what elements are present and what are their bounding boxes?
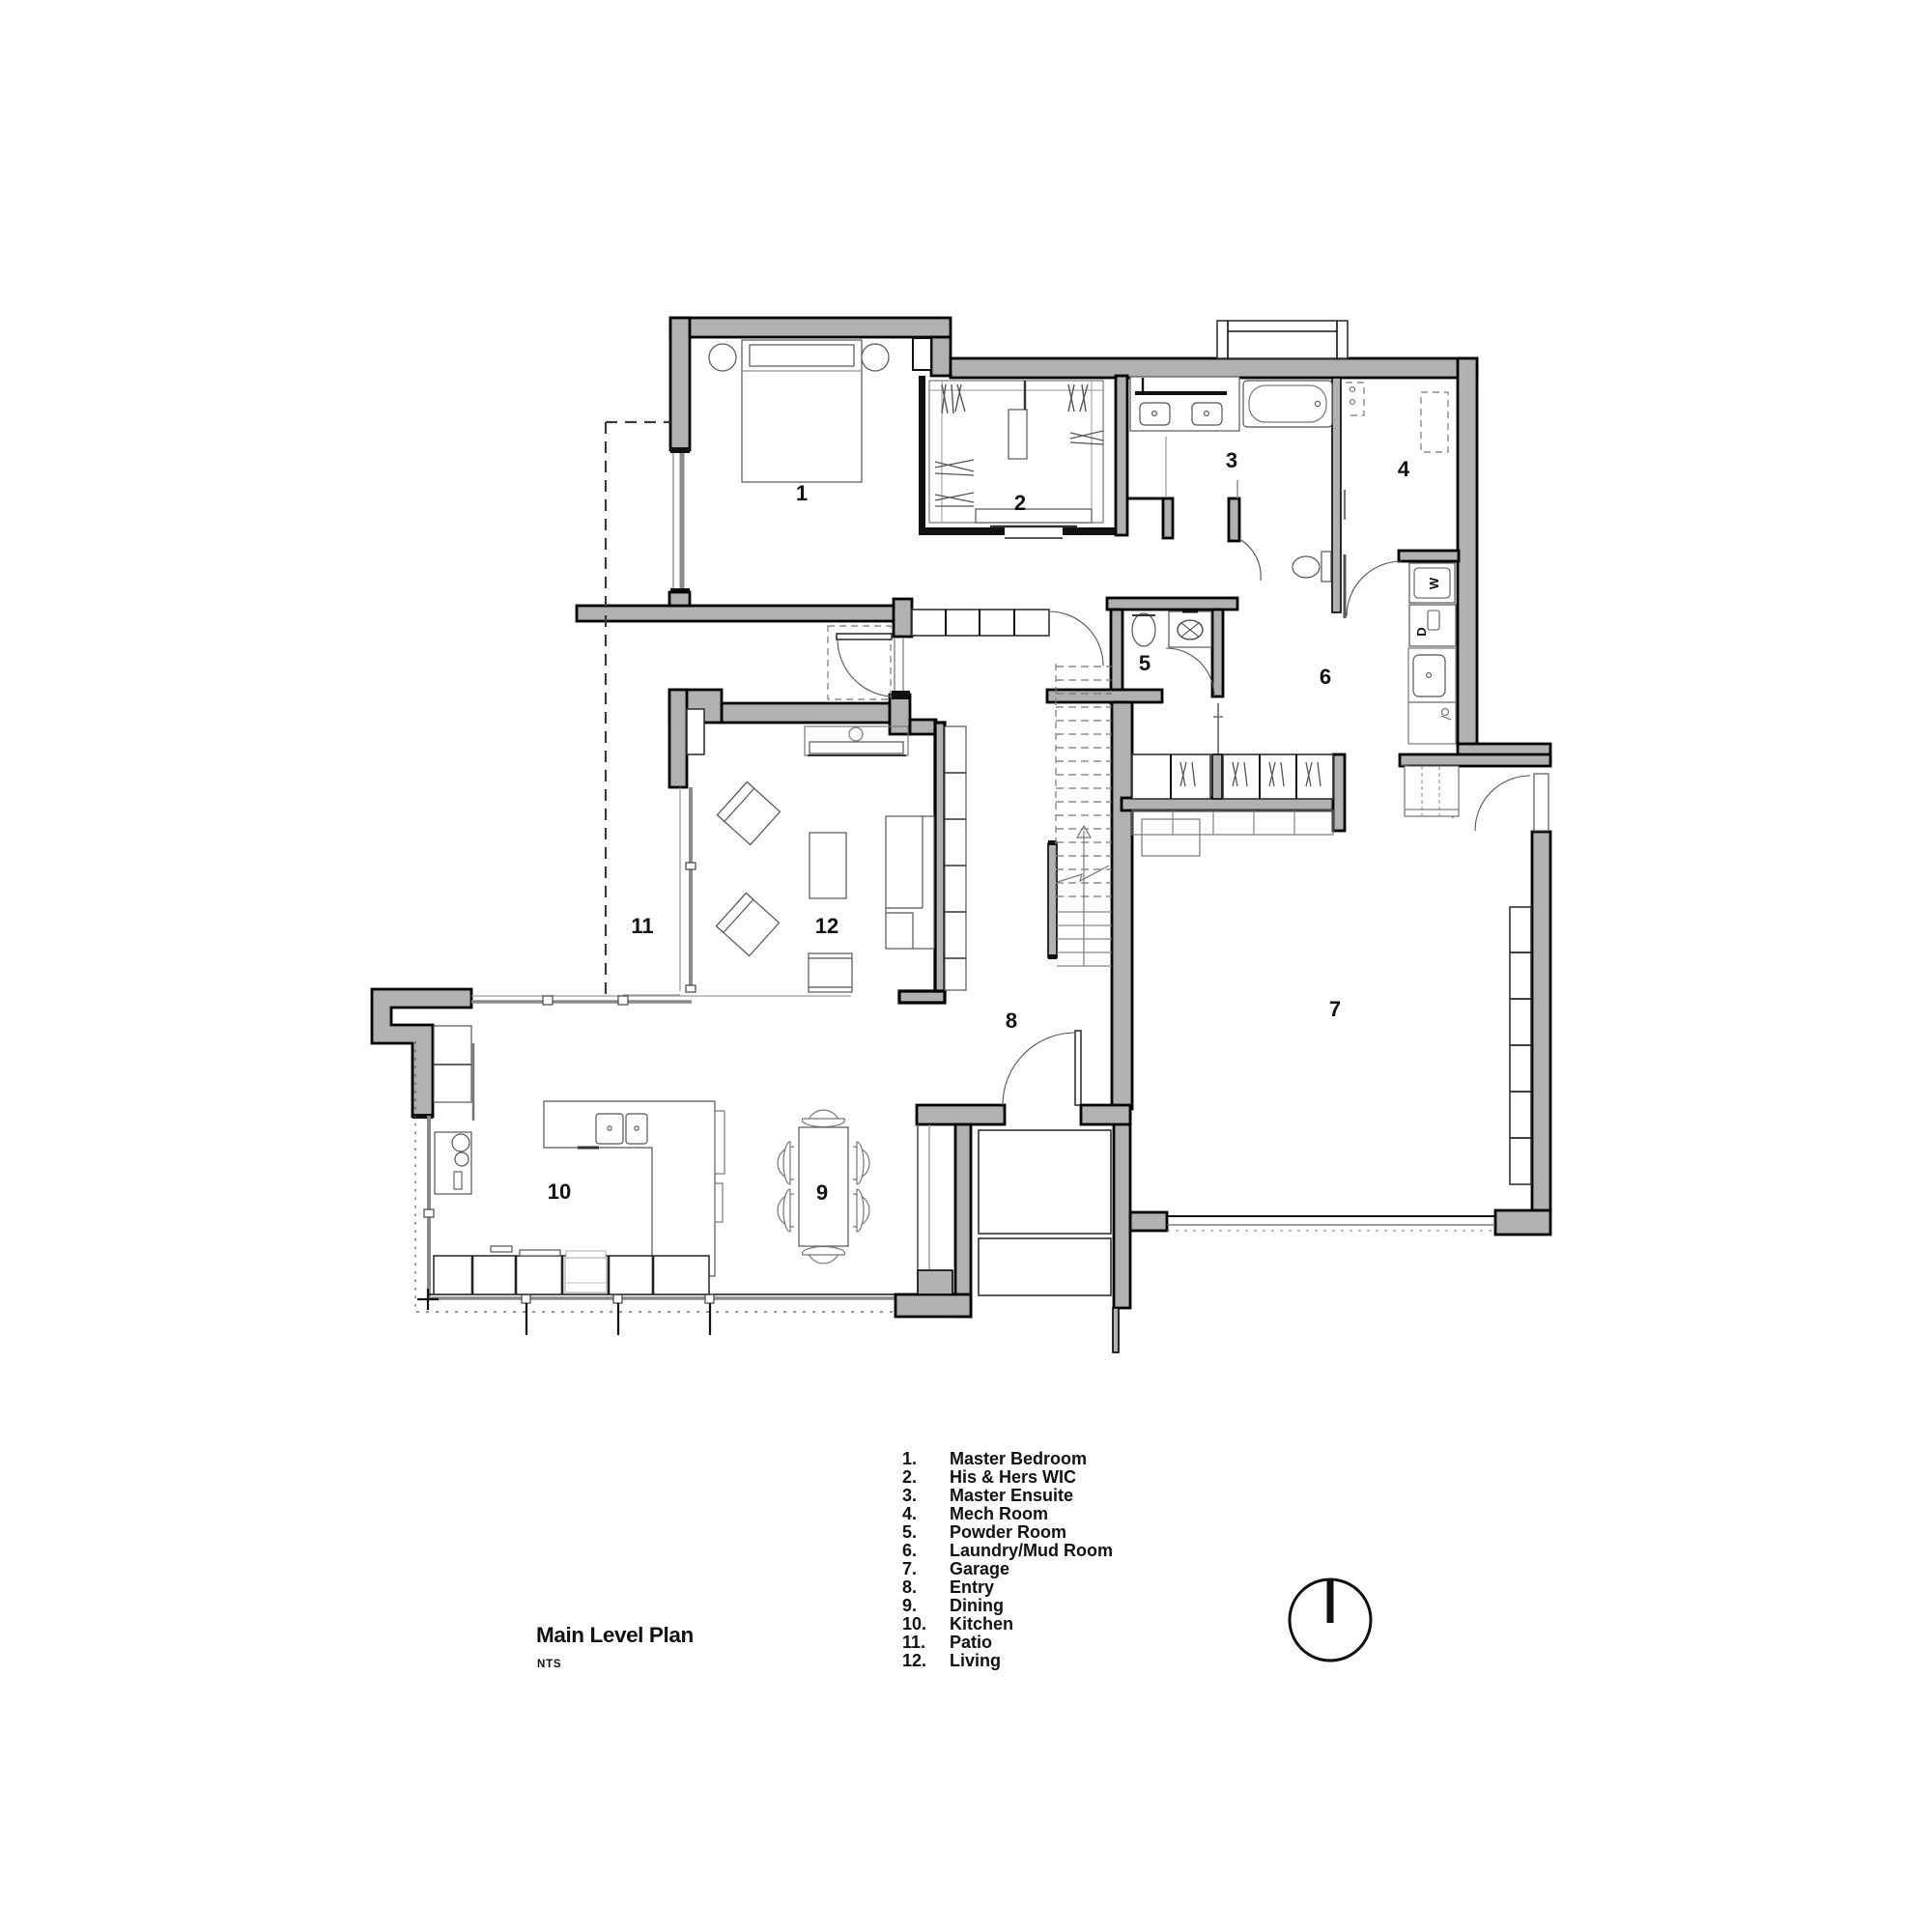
svg-text:12: 12 — [815, 914, 838, 938]
svg-text:8: 8 — [1006, 1009, 1017, 1033]
svg-text:Master Bedroom: Master Bedroom — [950, 1449, 1087, 1468]
svg-text:10: 10 — [548, 1179, 571, 1204]
svg-text:W: W — [1427, 577, 1441, 589]
svg-text:11: 11 — [631, 914, 653, 938]
svg-text:Patio: Patio — [950, 1633, 992, 1652]
svg-text:9: 9 — [816, 1180, 828, 1205]
svg-text:6: 6 — [1320, 665, 1331, 689]
svg-text:Master Ensuite: Master Ensuite — [950, 1486, 1073, 1505]
svg-text:7: 7 — [1329, 997, 1341, 1021]
svg-text:5: 5 — [1139, 651, 1151, 675]
svg-text:Dining: Dining — [950, 1596, 1004, 1615]
svg-text:1.: 1. — [902, 1449, 917, 1468]
svg-text:6.: 6. — [902, 1541, 917, 1560]
svg-text:2: 2 — [1014, 491, 1026, 515]
svg-text:4.: 4. — [902, 1504, 917, 1523]
svg-text:2.: 2. — [902, 1467, 917, 1487]
svg-text:His & Hers WIC: His & Hers WIC — [950, 1467, 1076, 1487]
svg-text:9.: 9. — [902, 1596, 917, 1615]
svg-text:Main Level Plan: Main Level Plan — [536, 1623, 694, 1647]
svg-text:Entry: Entry — [950, 1577, 994, 1597]
svg-text:10.: 10. — [902, 1614, 926, 1634]
svg-text:NTS: NTS — [537, 1659, 561, 1670]
svg-text:3: 3 — [1226, 448, 1237, 472]
svg-text:11.: 11. — [902, 1633, 925, 1652]
svg-text:1: 1 — [796, 481, 808, 505]
svg-text:Living: Living — [950, 1651, 1001, 1670]
svg-text:Laundry/Mud Room: Laundry/Mud Room — [950, 1541, 1113, 1560]
svg-text:Mech Room: Mech Room — [950, 1504, 1048, 1523]
svg-text:12.: 12. — [902, 1651, 926, 1670]
svg-text:5.: 5. — [902, 1522, 917, 1542]
svg-text:Powder Room: Powder Room — [950, 1522, 1066, 1542]
svg-text:Garage: Garage — [950, 1559, 1009, 1578]
svg-text:D: D — [1414, 627, 1429, 636]
svg-text:4: 4 — [1398, 457, 1410, 481]
svg-text:3.: 3. — [902, 1486, 917, 1505]
svg-text:Kitchen: Kitchen — [950, 1614, 1013, 1634]
svg-text:8.: 8. — [902, 1577, 917, 1597]
svg-text:7.: 7. — [902, 1559, 917, 1578]
